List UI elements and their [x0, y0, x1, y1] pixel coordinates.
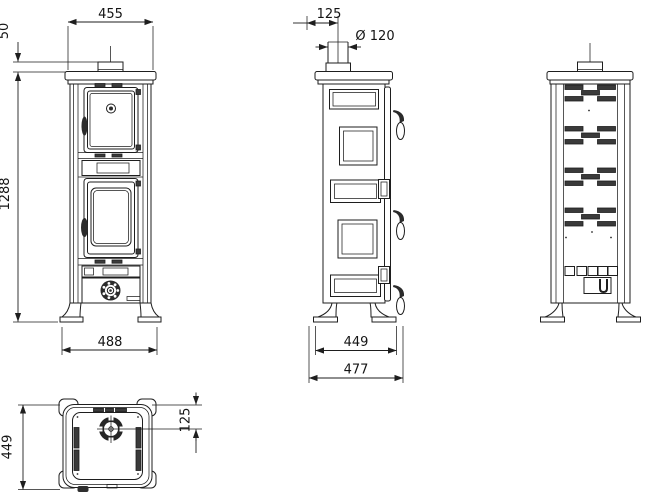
front-vent-slot	[95, 154, 105, 157]
side-body	[323, 84, 391, 303]
side-view: 125 Ø 120 449 477	[293, 7, 405, 383]
top-rear-vent-slots	[94, 408, 127, 412]
rear-flue-collar	[578, 62, 603, 72]
side-top-plate	[315, 72, 393, 81]
dim-label-overall-height: 1288	[0, 177, 13, 210]
oven-door-hinge	[136, 145, 141, 150]
stove-orthographic-drawing: 455 50 1288 488	[0, 0, 647, 500]
door-handle-side	[393, 285, 405, 315]
fire-door-handle	[81, 218, 88, 237]
oven-door-hinge	[136, 90, 141, 95]
air-control-rosette	[101, 281, 121, 301]
front-top-plate-tier	[68, 80, 153, 84]
rear-legs	[541, 303, 641, 322]
front-vent-slot	[95, 84, 105, 87]
rear-top-plate	[547, 72, 633, 81]
dim-label-body-depth: 449	[344, 335, 369, 350]
oven-door	[82, 88, 141, 153]
fire-door	[81, 179, 141, 258]
rear-view	[541, 43, 641, 322]
side-door-handles	[393, 110, 405, 315]
dim-label-overall-depth: 477	[344, 363, 369, 378]
dim-label-front-top-width: 455	[98, 7, 123, 22]
front-top-plate	[65, 72, 156, 81]
fire-door-hinge	[136, 249, 141, 254]
side-top-plate-tier	[318, 80, 389, 84]
front-legs	[60, 303, 161, 322]
top-view: 449 125	[1, 393, 203, 493]
door-handle-side	[393, 210, 405, 240]
rear-body	[551, 84, 630, 303]
dim-label-base-width: 488	[98, 335, 123, 350]
front-vent-slot	[95, 260, 105, 263]
front-view: 455 50 1288 488	[0, 7, 161, 355]
dim-label-flue-collar-height: 50	[0, 23, 12, 40]
front-flue-collar	[98, 62, 123, 72]
fire-door-hinge	[136, 181, 141, 186]
dim-label-top-flue-offset: 125	[179, 408, 194, 433]
front-vent-slot	[112, 84, 122, 87]
dim-label-side-flue-offset: 125	[317, 7, 342, 22]
front-vent-slot	[112, 154, 122, 157]
front-vent-slot	[112, 260, 122, 263]
rear-top-plate-tier	[550, 80, 630, 84]
door-handle-side	[393, 110, 405, 140]
dim-label-flue-diameter: Ø 120	[355, 29, 394, 44]
dim-label-top-depth: 449	[1, 435, 16, 460]
oven-door-handle	[82, 117, 88, 136]
technical-drawing-page: 455 50 1288 488	[0, 0, 647, 500]
side-legs	[314, 303, 397, 322]
